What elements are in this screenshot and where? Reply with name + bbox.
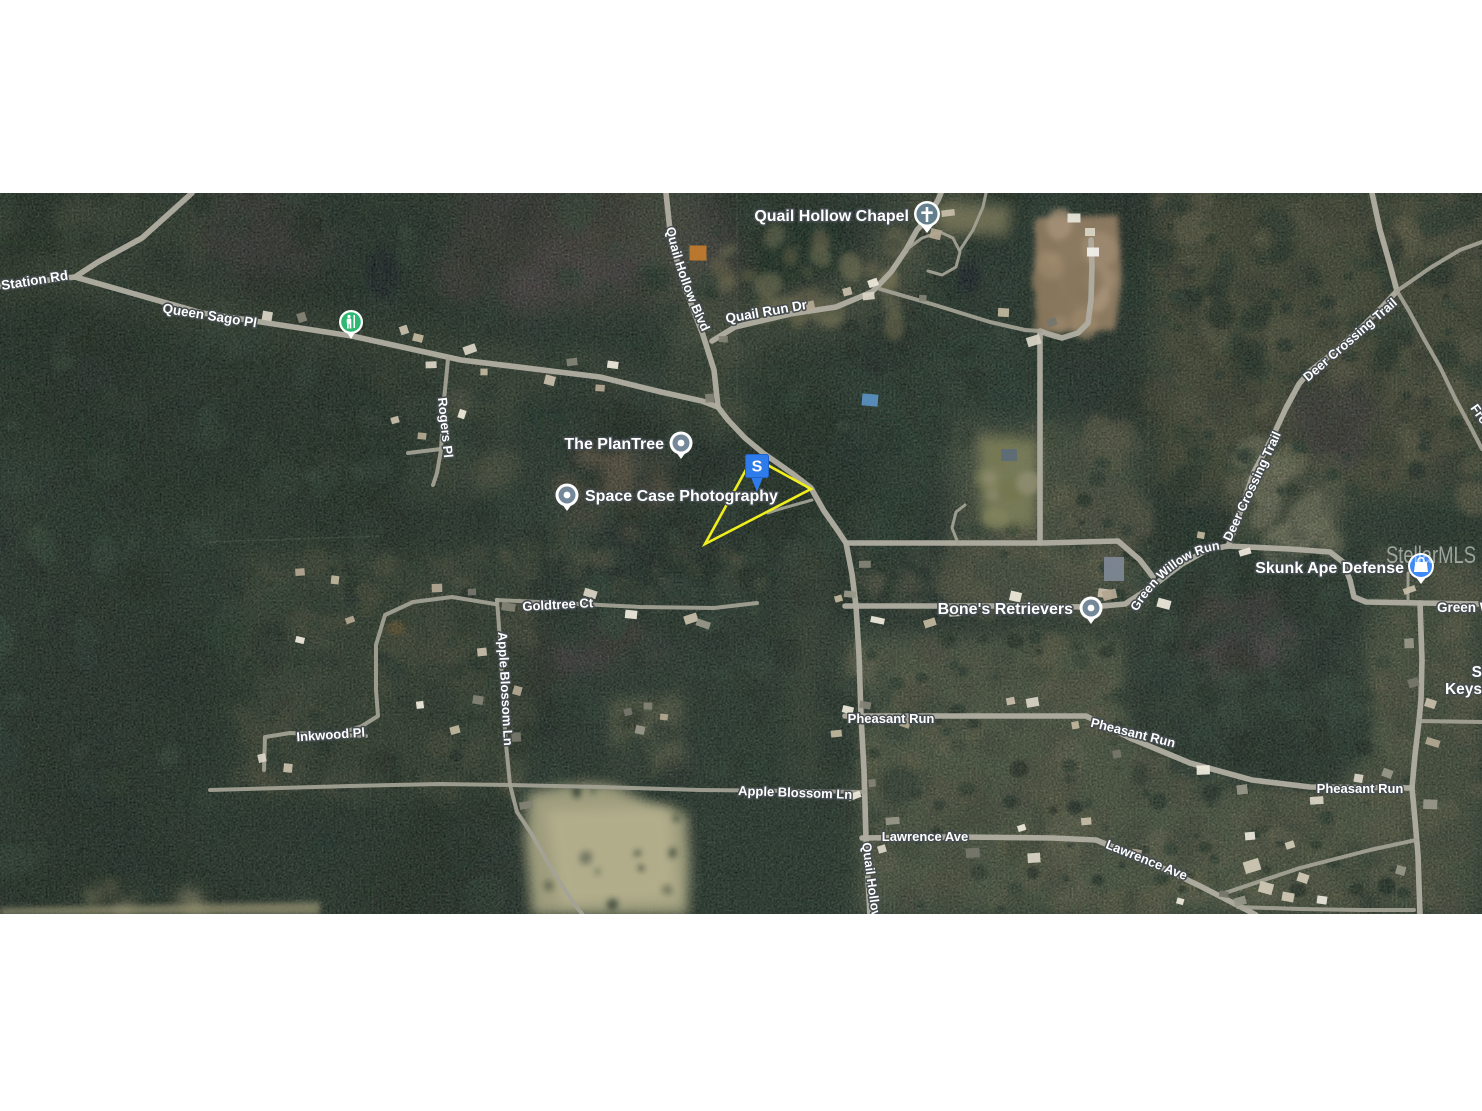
svg-text:Quail Hollow Chapel: Quail Hollow Chapel <box>754 208 909 225</box>
svg-text:The PlanTree: The PlanTree <box>564 436 664 453</box>
svg-text:Green W: Green W <box>1437 600 1482 615</box>
svg-text:Pheasant Run: Pheasant Run <box>1317 781 1404 796</box>
svg-text:S: S <box>1472 664 1482 681</box>
svg-text:Space Case Photography: Space Case Photography <box>585 488 778 505</box>
svg-text:StellarMLS: StellarMLS <box>1386 542 1476 569</box>
svg-text:Bone's Retrievers: Bone's Retrievers <box>938 601 1074 618</box>
svg-text:Keys: Keys <box>1445 681 1482 698</box>
svg-text:Lawrence Ave: Lawrence Ave <box>882 829 968 844</box>
svg-text:Pheasant Run: Pheasant Run <box>848 711 935 726</box>
svg-text:Skunk Ape Defense: Skunk Ape Defense <box>1255 560 1404 577</box>
svg-text:S: S <box>752 459 763 476</box>
